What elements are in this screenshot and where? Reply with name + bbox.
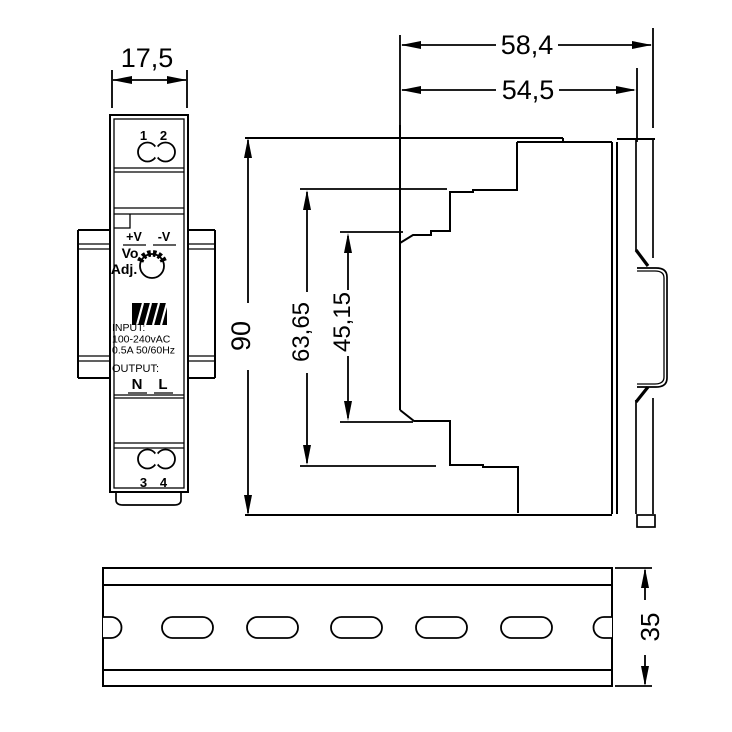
terminal-4-label: 4 xyxy=(160,475,168,490)
dim-side-height-total: 90 xyxy=(226,138,256,515)
dim-side-depth-body-label: 54,5 xyxy=(502,75,555,105)
rail-slot xyxy=(416,617,467,638)
neutral-label: N xyxy=(132,376,143,393)
input-current: 0.5A 50/60Hz xyxy=(112,345,175,357)
output-heading: OUTPUT: xyxy=(112,363,159,375)
line-label: L xyxy=(158,376,167,393)
dim-side-depth-total-label: 58,4 xyxy=(501,30,554,60)
vo-label: Vo xyxy=(122,245,139,261)
front-view: 17,5 1 2 +V -V Vo A xyxy=(78,43,215,505)
rail-slot xyxy=(247,617,298,638)
minus-v-label: -V xyxy=(158,230,171,244)
side-view: 58,4 54,5 xyxy=(226,28,667,527)
rail-slot xyxy=(331,617,382,638)
dim-side-depth-body: 54,5 xyxy=(401,68,637,142)
rail-slot xyxy=(162,617,213,638)
terminal-top: 1 2 xyxy=(138,128,175,162)
terminal-bottom: 3 4 xyxy=(138,450,175,491)
divider-bottom xyxy=(114,395,184,448)
clip-foot xyxy=(637,515,655,527)
dim-side-height-mid: 63,65 xyxy=(288,189,447,466)
vo-adj-potentiometer-icon xyxy=(140,253,164,278)
din-rail-view: 35 xyxy=(103,568,665,686)
dim-side-height-front-label: 45,15 xyxy=(329,292,356,352)
din-clip-and-rail-section xyxy=(617,139,667,527)
dim-side-height-total-label: 90 xyxy=(226,321,256,351)
dim-front-width-label: 17,5 xyxy=(121,43,174,73)
dim-front-width: 17,5 xyxy=(112,43,187,108)
terminal-3-label: 3 xyxy=(140,475,147,490)
dim-rail-height-label: 35 xyxy=(635,613,665,642)
module-foot xyxy=(116,493,181,505)
technical-drawing-page: 17,5 1 2 +V -V Vo A xyxy=(0,0,732,732)
adj-label: Adj. xyxy=(111,261,137,277)
plus-v-label: +V xyxy=(126,230,142,244)
front-panel: +V -V Vo Adj. INPUT: 100-240vAC 0.5A 50/… xyxy=(111,230,176,393)
dim-side-height-mid-label: 63,65 xyxy=(288,302,315,362)
rail-end-notch-right xyxy=(594,617,613,638)
drawing-svg: 17,5 1 2 +V -V Vo A xyxy=(0,0,732,732)
rail-end-notch-left xyxy=(103,617,122,638)
label-notch xyxy=(114,214,130,228)
arrow-left xyxy=(112,76,132,84)
input-heading: INPUT: xyxy=(112,322,145,334)
arrow-right xyxy=(167,76,187,84)
terminal-2-label: 2 xyxy=(160,128,167,143)
terminal-1-label: 1 xyxy=(140,128,147,143)
rail-slot xyxy=(501,617,552,638)
dim-rail-height: 35 xyxy=(615,568,665,686)
divider-top xyxy=(114,168,184,214)
